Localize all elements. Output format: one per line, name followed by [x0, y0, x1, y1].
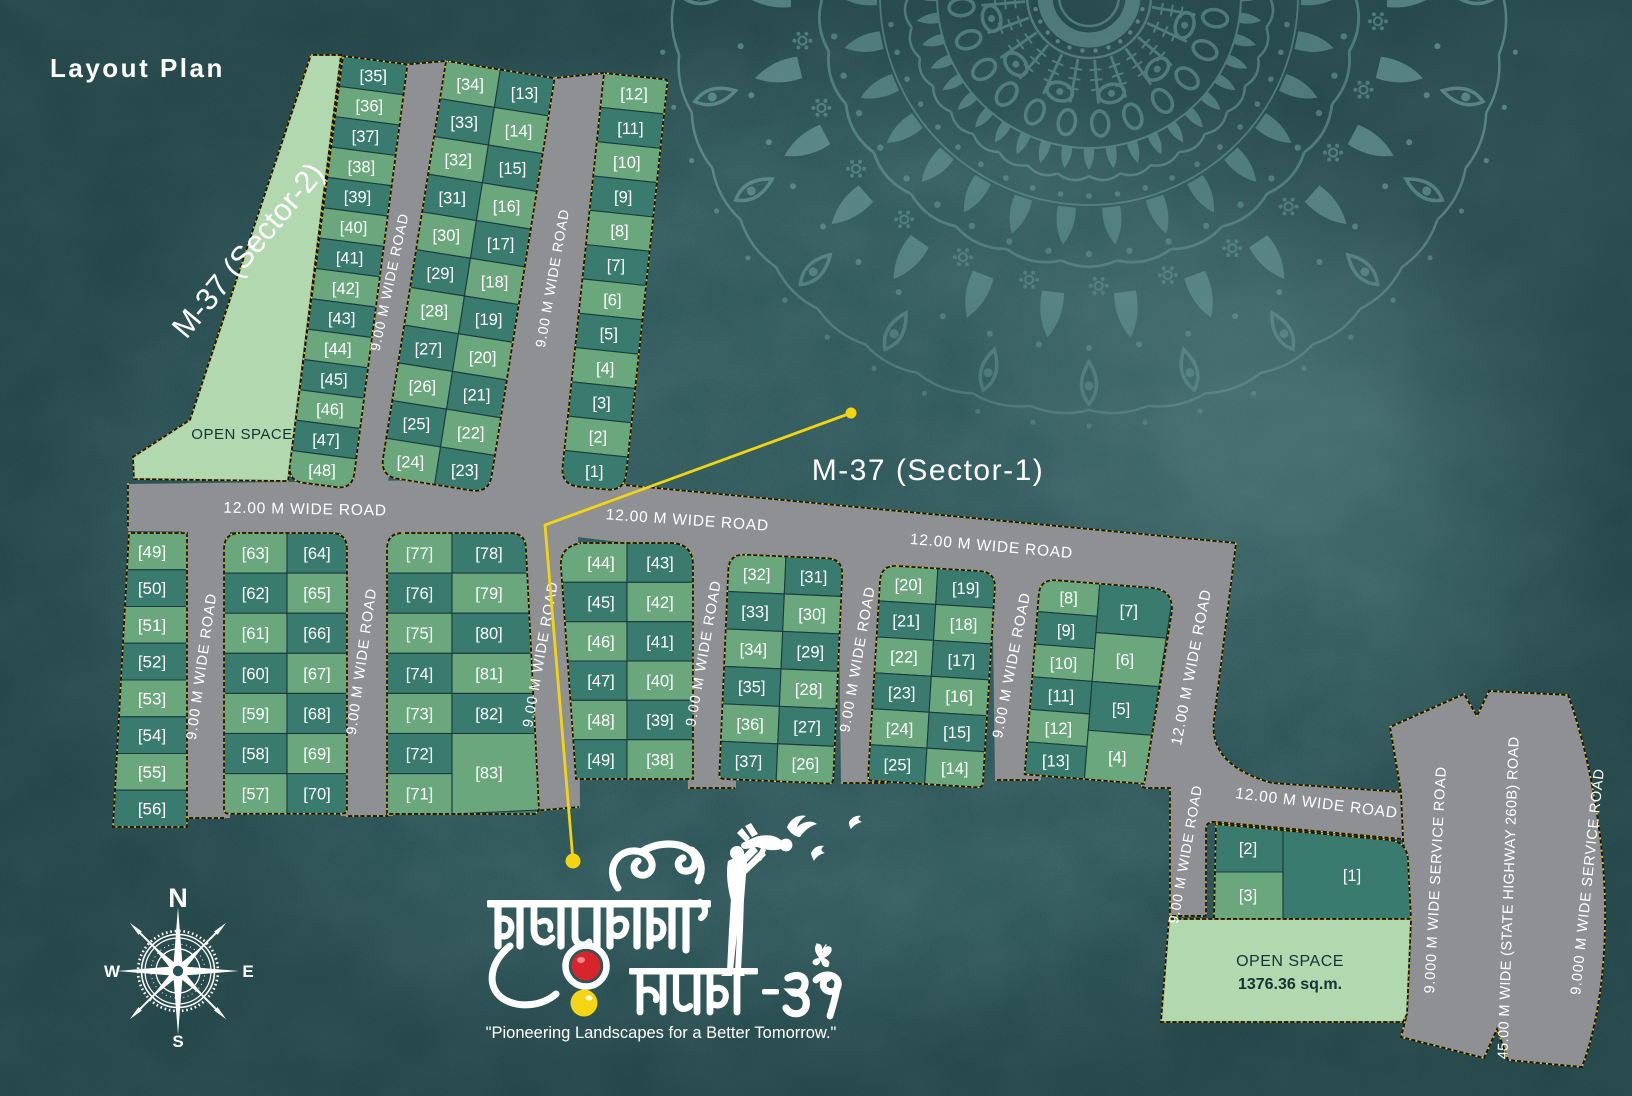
svg-text:[57]: [57] [242, 786, 270, 804]
svg-text:[42]: [42] [332, 280, 360, 298]
svg-text:[17]: [17] [487, 236, 515, 254]
svg-text:[20]: [20] [895, 577, 923, 595]
svg-text:[44]: [44] [587, 555, 615, 573]
svg-text:S: S [172, 1032, 183, 1051]
svg-text:[73]: [73] [406, 706, 434, 724]
svg-text:[48]: [48] [587, 712, 615, 730]
svg-text:[16]: [16] [945, 688, 973, 706]
svg-text:[24]: [24] [886, 720, 914, 738]
svg-text:[4]: [4] [596, 360, 614, 378]
svg-text:[41]: [41] [646, 633, 674, 651]
svg-text:[36]: [36] [736, 716, 764, 734]
svg-text:[25]: [25] [403, 416, 431, 434]
svg-text:[83]: [83] [475, 765, 503, 783]
svg-text:[16]: [16] [493, 198, 521, 216]
svg-text:[17]: [17] [948, 652, 976, 670]
svg-text:[24]: [24] [397, 453, 425, 471]
svg-text:[27]: [27] [793, 718, 821, 736]
svg-text:[21]: [21] [892, 613, 920, 631]
svg-text:M-37 (Sector-1): M-37 (Sector-1) [812, 454, 1045, 487]
svg-text:[30]: [30] [433, 227, 461, 245]
svg-text:[47]: [47] [312, 432, 340, 450]
svg-text:[48]: [48] [308, 462, 336, 480]
svg-text:N: N [168, 883, 188, 913]
svg-text:[10]: [10] [613, 154, 641, 172]
svg-text:[44]: [44] [324, 340, 352, 358]
svg-text:[53]: [53] [138, 689, 166, 708]
svg-text:[12]: [12] [620, 85, 648, 103]
svg-text:[6]: [6] [603, 291, 621, 309]
svg-text:[71]: [71] [406, 786, 434, 804]
svg-text:[49]: [49] [138, 542, 166, 561]
svg-text:[34]: [34] [740, 641, 768, 659]
svg-text:Layout Plan: Layout Plan [50, 53, 225, 83]
svg-text:[39]: [39] [344, 189, 372, 207]
svg-text:[22]: [22] [890, 649, 918, 667]
svg-text:[32]: [32] [444, 152, 472, 170]
svg-text:[19]: [19] [952, 580, 980, 598]
svg-text:[65]: [65] [303, 585, 331, 603]
svg-text:[15]: [15] [943, 724, 971, 742]
svg-text:[7]: [7] [607, 257, 625, 275]
svg-text:1376.36 sq.m.: 1376.36 sq.m. [1238, 976, 1342, 993]
svg-text:[11]: [11] [1048, 687, 1074, 705]
svg-text:[25]: [25] [884, 756, 912, 774]
svg-text:[6]: [6] [1116, 651, 1134, 669]
svg-text:[28]: [28] [421, 303, 449, 321]
svg-text:[37]: [37] [735, 753, 763, 771]
svg-text:[40]: [40] [646, 673, 674, 691]
svg-text:[47]: [47] [587, 673, 615, 691]
svg-text:[1]: [1] [585, 463, 603, 481]
svg-text:[28]: [28] [795, 681, 823, 699]
svg-text:[2]: [2] [589, 429, 607, 447]
svg-text:[54]: [54] [138, 726, 166, 745]
svg-text:[14]: [14] [941, 760, 969, 778]
svg-text:[13]: [13] [1042, 752, 1070, 770]
svg-text:[72]: [72] [406, 746, 434, 764]
svg-text:[2]: [2] [1239, 840, 1257, 858]
svg-text:[5]: [5] [600, 326, 618, 344]
svg-text:[43]: [43] [646, 555, 674, 573]
svg-text:[31]: [31] [438, 189, 466, 207]
svg-text:[1]: [1] [1343, 867, 1361, 885]
svg-text:[49]: [49] [587, 751, 615, 769]
svg-text:[31]: [31] [800, 569, 828, 587]
svg-text:[76]: [76] [406, 585, 434, 603]
svg-text:[13]: [13] [511, 85, 539, 103]
svg-text:[37]: [37] [352, 128, 380, 146]
svg-text:"Pioneering Landscapes for a B: "Pioneering Landscapes for a Better Tomo… [486, 1024, 837, 1042]
svg-text:[34]: [34] [456, 76, 484, 94]
svg-text:[78]: [78] [475, 545, 503, 563]
svg-text:[42]: [42] [646, 594, 674, 612]
svg-text:[33]: [33] [741, 603, 769, 621]
svg-text:[50]: [50] [138, 579, 166, 598]
svg-text:[20]: [20] [469, 349, 497, 367]
svg-text:[11]: [11] [617, 120, 643, 138]
svg-text:OPEN SPACE: OPEN SPACE [1236, 953, 1344, 970]
svg-text:[70]: [70] [303, 786, 331, 804]
svg-text:W: W [104, 962, 121, 981]
svg-text:[74]: [74] [406, 665, 434, 683]
svg-text:[60]: [60] [242, 665, 270, 683]
svg-text:[18]: [18] [481, 273, 509, 291]
svg-text:[43]: [43] [328, 310, 356, 328]
svg-text:[58]: [58] [242, 746, 270, 764]
svg-text:[45]: [45] [320, 371, 348, 389]
svg-text:[23]: [23] [888, 685, 916, 703]
svg-text:[7]: [7] [1120, 603, 1138, 621]
svg-text:[29]: [29] [427, 265, 455, 283]
svg-text:[67]: [67] [303, 665, 331, 683]
svg-text:[21]: [21] [463, 387, 491, 405]
svg-text:[39]: [39] [646, 712, 674, 730]
svg-text:[69]: [69] [303, 746, 331, 764]
svg-text:[8]: [8] [1059, 590, 1077, 608]
svg-text:[10]: [10] [1050, 655, 1078, 673]
svg-text:[9]: [9] [614, 188, 632, 206]
svg-text:[5]: [5] [1112, 700, 1130, 718]
svg-text:[41]: [41] [336, 249, 364, 267]
svg-text:[77]: [77] [406, 545, 434, 563]
svg-text:[51]: [51] [138, 616, 166, 635]
svg-text:[15]: [15] [499, 160, 527, 178]
svg-text:[33]: [33] [450, 114, 478, 132]
svg-text:E: E [242, 962, 253, 981]
svg-text:[3]: [3] [1239, 887, 1257, 905]
svg-text:[4]: [4] [1108, 749, 1126, 767]
svg-text:[35]: [35] [359, 67, 387, 85]
svg-text:[46]: [46] [587, 633, 615, 651]
svg-text:[82]: [82] [475, 706, 503, 724]
svg-text:[38]: [38] [348, 158, 376, 176]
svg-text:[22]: [22] [457, 424, 485, 442]
svg-text:[26]: [26] [409, 378, 437, 396]
svg-text:[26]: [26] [792, 756, 820, 774]
svg-text:[18]: [18] [950, 616, 978, 634]
svg-text:[8]: [8] [610, 223, 628, 241]
svg-text:[45]: [45] [587, 594, 615, 612]
svg-text:[64]: [64] [303, 545, 331, 563]
svg-text:[3]: [3] [592, 394, 610, 412]
svg-text:[56]: [56] [138, 800, 166, 819]
svg-text:[61]: [61] [242, 625, 270, 643]
svg-text:[9]: [9] [1057, 622, 1075, 640]
svg-text:OPEN SPACE: OPEN SPACE [191, 426, 292, 443]
svg-text:[27]: [27] [415, 340, 443, 358]
svg-text:[32]: [32] [743, 566, 771, 584]
svg-text:[59]: [59] [242, 706, 270, 724]
svg-text:[14]: [14] [505, 123, 533, 141]
svg-text:[52]: [52] [138, 653, 166, 672]
svg-text:[62]: [62] [242, 585, 270, 603]
svg-text:[75]: [75] [406, 625, 434, 643]
svg-text:[38]: [38] [646, 751, 674, 769]
svg-text:[29]: [29] [797, 643, 825, 661]
svg-text:[63]: [63] [242, 545, 270, 563]
svg-text:12.00 M WIDE ROAD: 12.00 M WIDE ROAD [223, 500, 387, 520]
svg-text:[66]: [66] [303, 625, 331, 643]
svg-text:[55]: [55] [138, 763, 166, 782]
svg-text:[81]: [81] [475, 665, 503, 683]
svg-text:[79]: [79] [475, 585, 503, 603]
svg-text:[23]: [23] [451, 462, 479, 480]
svg-text:[68]: [68] [303, 706, 331, 724]
svg-text:[19]: [19] [475, 311, 503, 329]
svg-text:[46]: [46] [316, 401, 344, 419]
svg-text:[36]: [36] [356, 98, 384, 116]
svg-text:[80]: [80] [475, 625, 503, 643]
svg-text:[35]: [35] [738, 678, 766, 696]
svg-text:[30]: [30] [798, 606, 826, 624]
svg-text:[40]: [40] [340, 219, 368, 237]
svg-text:[12]: [12] [1045, 720, 1073, 738]
